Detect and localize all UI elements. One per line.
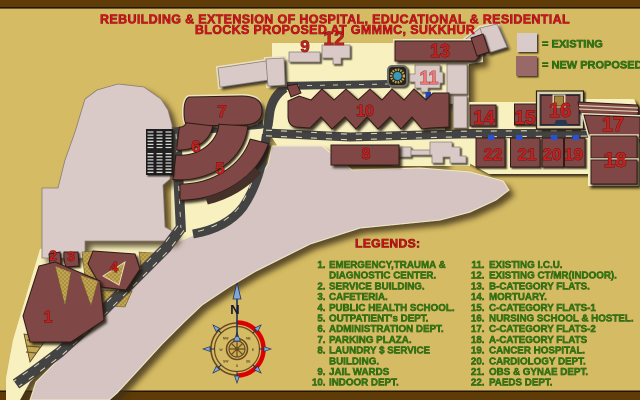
- svg-text:A-CATEGORY FLATS: A-CATEGORY FLATS: [489, 335, 588, 346]
- svg-text:NE: NE: [246, 337, 251, 341]
- svg-text:C-CATEGORY FLATS-1: C-CATEGORY FLATS-1: [489, 303, 596, 314]
- svg-text:4.: 4.: [317, 303, 325, 314]
- svg-text:22.: 22.: [471, 378, 485, 389]
- svg-text:EMERGENCY,TRAUMA &: EMERGENCY,TRAUMA &: [329, 260, 446, 271]
- svg-text:22: 22: [484, 145, 503, 164]
- svg-text:BLOCKS PROPOSED AT GMMMC, SUKK: BLOCKS PROPOSED AT GMMMC, SUKKHUR: [195, 23, 475, 37]
- svg-text:11.: 11.: [471, 260, 484, 271]
- svg-text:20: 20: [543, 145, 562, 164]
- svg-text:12.: 12.: [471, 271, 485, 282]
- svg-text:6: 6: [191, 137, 200, 156]
- svg-text:B-CATEGORY FLATS.: B-CATEGORY FLATS.: [489, 281, 590, 292]
- svg-text:17.: 17.: [471, 324, 485, 335]
- svg-text:2: 2: [49, 247, 57, 263]
- svg-text:PAEDS DEPT.: PAEDS DEPT.: [489, 378, 553, 389]
- svg-text:DIAGNOSTIC CENTER.: DIAGNOSTIC CENTER.: [329, 271, 437, 282]
- svg-text:6.: 6.: [317, 324, 325, 335]
- svg-text:LEGENDS:: LEGENDS:: [355, 237, 420, 251]
- svg-text:7.: 7.: [317, 335, 325, 346]
- svg-text:21.: 21.: [471, 367, 485, 378]
- svg-text:20.: 20.: [471, 356, 485, 367]
- svg-text:EXISTING CT/MR(INDOOR).: EXISTING CT/MR(INDOOR).: [489, 271, 617, 282]
- svg-text:LAUNDRY $ SERVICE: LAUNDRY $ SERVICE: [329, 346, 431, 357]
- svg-text:SERVICE BUILDING.: SERVICE BUILDING.: [329, 281, 425, 292]
- svg-text:NW: NW: [223, 337, 229, 341]
- svg-text:1.: 1.: [317, 260, 325, 271]
- svg-text:9.: 9.: [317, 367, 325, 378]
- svg-text:3.: 3.: [317, 292, 325, 303]
- svg-text:SW: SW: [223, 359, 229, 363]
- svg-text:5: 5: [215, 159, 224, 178]
- svg-text:10.: 10.: [312, 378, 326, 389]
- svg-text:16: 16: [549, 100, 571, 122]
- svg-text:15: 15: [514, 108, 536, 129]
- svg-text:3: 3: [67, 248, 75, 264]
- svg-text:N: N: [230, 302, 239, 317]
- svg-text:JAIL WARDS: JAIL WARDS: [329, 367, 390, 378]
- svg-text:14: 14: [473, 108, 495, 129]
- svg-text:4: 4: [110, 259, 119, 276]
- svg-text:SE: SE: [246, 359, 251, 363]
- svg-text:17: 17: [602, 114, 624, 136]
- svg-text:CAFETERIA.: CAFETERIA.: [329, 292, 388, 303]
- svg-text:OUTPATIENT's DEPT.: OUTPATIENT's DEPT.: [329, 314, 429, 325]
- svg-text:PARKING PLAZA.: PARKING PLAZA.: [329, 335, 412, 346]
- svg-text:2.: 2.: [317, 281, 325, 292]
- svg-text:19: 19: [564, 145, 583, 164]
- svg-text:EXISTING I.C.U.: EXISTING I.C.U.: [489, 260, 563, 271]
- svg-text:MORTUARY.: MORTUARY.: [489, 292, 547, 303]
- svg-text:ADMINISTRATION DEPT.: ADMINISTRATION DEPT.: [329, 324, 444, 335]
- svg-text:NURSING SCHOOL & HOSTEL.: NURSING SCHOOL & HOSTEL.: [489, 314, 634, 325]
- svg-text:5.: 5.: [317, 314, 325, 325]
- svg-text:13: 13: [430, 41, 450, 61]
- svg-text:16.: 16.: [471, 314, 485, 325]
- svg-text:15.: 15.: [471, 303, 485, 314]
- svg-text:7: 7: [217, 102, 226, 121]
- svg-text:CARDIOLOGY DEPT.: CARDIOLOGY DEPT.: [489, 356, 586, 367]
- svg-text:= EXISTING: = EXISTING: [542, 39, 603, 51]
- svg-text:10: 10: [356, 103, 374, 120]
- svg-text:BUILDING.: BUILDING.: [329, 356, 379, 367]
- svg-text:13.: 13.: [471, 281, 485, 292]
- svg-text:11: 11: [419, 68, 438, 88]
- svg-text:CANCER HOSPITAL.: CANCER HOSPITAL.: [489, 346, 585, 357]
- svg-text:INDOOR DEPT.: INDOOR DEPT.: [329, 378, 399, 389]
- svg-text:= NEW PROPOSED: = NEW PROPOSED: [542, 60, 640, 72]
- svg-text:21: 21: [518, 145, 537, 164]
- svg-text:19.: 19.: [471, 346, 485, 357]
- svg-text:9: 9: [300, 37, 309, 56]
- svg-text:8.: 8.: [317, 346, 325, 357]
- svg-text:8: 8: [362, 146, 371, 163]
- svg-text:OBS & GYNAE DEPT.: OBS & GYNAE DEPT.: [489, 367, 588, 378]
- svg-text:PUBLIC HEALTH SCHOOL.: PUBLIC HEALTH SCHOOL.: [329, 303, 455, 314]
- svg-text:C-CATEGORY FLATS-2: C-CATEGORY FLATS-2: [489, 324, 596, 335]
- svg-text:18.: 18.: [471, 335, 485, 346]
- svg-text:14.: 14.: [471, 292, 485, 303]
- svg-text:18: 18: [603, 149, 627, 172]
- svg-text:1: 1: [44, 309, 53, 326]
